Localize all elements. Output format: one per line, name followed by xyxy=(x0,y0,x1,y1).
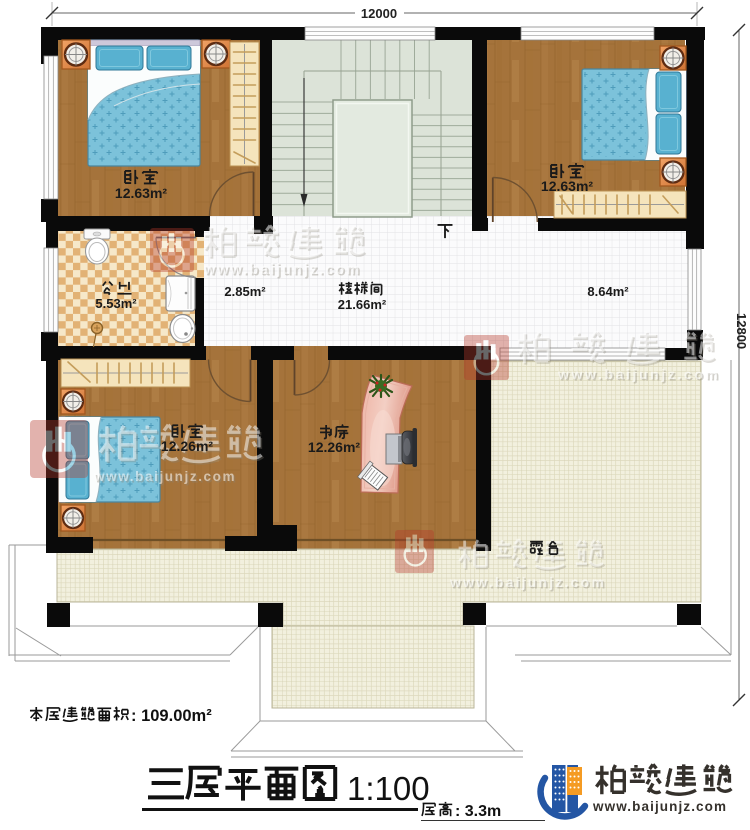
svg-text:5.53m²: 5.53m² xyxy=(95,296,137,311)
svg-text:: 109.00m²: : 109.00m² xyxy=(131,707,212,725)
svg-text:12.63m²: 12.63m² xyxy=(541,178,593,194)
svg-text:21.66m²: 21.66m² xyxy=(338,297,387,312)
svg-text:12800: 12800 xyxy=(734,313,749,349)
svg-text:www.baijunjz.com: www.baijunjz.com xyxy=(449,574,606,590)
svg-text:: 3.3m: : 3.3m xyxy=(455,803,501,820)
svg-text:2.85m²: 2.85m² xyxy=(224,284,266,299)
svg-text:www.baijunjz.com: www.baijunjz.com xyxy=(557,366,720,382)
svg-text:12000: 12000 xyxy=(361,6,397,21)
svg-text:12.26m²: 12.26m² xyxy=(308,439,360,455)
svg-text:www.baijunjz.com: www.baijunjz.com xyxy=(93,469,236,484)
svg-text:www.baijunjz.com: www.baijunjz.com xyxy=(203,262,361,278)
svg-text:1:100: 1:100 xyxy=(347,770,430,807)
svg-text:8.64m²: 8.64m² xyxy=(587,284,629,299)
svg-text:www.baijunjz.com: www.baijunjz.com xyxy=(592,799,727,814)
svg-text:12.63m²: 12.63m² xyxy=(115,185,167,201)
svg-text:12.26m²: 12.26m² xyxy=(161,438,213,454)
